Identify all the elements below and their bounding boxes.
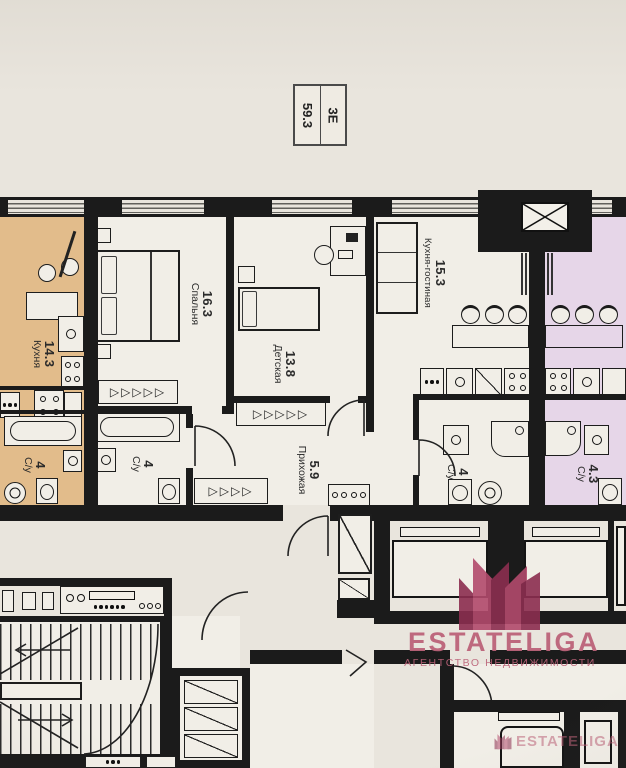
kitchen-left-cabinet (64, 392, 82, 418)
wall-kitchenleft-bedroom (84, 217, 98, 505)
bedroom-pillow-1 (101, 256, 117, 294)
vent-box-1 (184, 680, 238, 704)
unit-type-value: 3Е (326, 107, 341, 123)
door-arc-nursery (326, 398, 366, 438)
wall-bathmain-right-bottom (186, 468, 193, 505)
label-hallway: 5.9 Прихожая (290, 440, 326, 500)
elevator-x-icon (523, 204, 567, 230)
panel-box-2 (22, 592, 36, 610)
purple-stove (545, 368, 571, 396)
window-living (392, 200, 478, 214)
balcony-door-frame-right (547, 253, 553, 295)
label-bath-main: 4 С/у (128, 440, 156, 488)
living-washer (420, 368, 444, 396)
estateliga-brand-text: ESTATELIGA (408, 627, 592, 658)
wall-living-neighbor (529, 252, 545, 505)
wall-bedroom-bottom-right (222, 406, 234, 414)
bath-main-toilet (158, 478, 180, 504)
living-stove (504, 368, 530, 396)
elevator-car-2-door (532, 527, 600, 537)
elevator-wall-right (608, 521, 614, 611)
corridor-wall-left-piece (250, 650, 342, 664)
corner-brand-text: ESTATELIGA (516, 733, 619, 750)
small-shaft-box-1 (338, 514, 372, 574)
elevator-car-3-partial (616, 526, 626, 606)
corner-watermark: ESTATELIGA (492, 733, 619, 750)
wall-apartment-bottom-right (330, 505, 626, 521)
unit-badge: 59.3 3Е (293, 84, 347, 146)
living-sink (446, 368, 473, 396)
living-sofa-cushion-line-1 (378, 252, 416, 253)
panel-dots (89, 604, 129, 610)
floorplan-canvas: 59.3 3Е ▷▷▷▷▷ (0, 0, 626, 768)
living-bar-stool-3 (508, 305, 527, 324)
purple-bath-top-wall (545, 394, 626, 400)
bedroom-nightstand-1 (96, 228, 111, 243)
panel-dial-2 (77, 594, 85, 602)
bath-main-bathtub (94, 412, 180, 442)
lower-wall-horizontal (454, 700, 626, 712)
hallway-closet-top: ▷▷▷▷▷ (236, 402, 326, 426)
wall-bathsecond-left-bottom (413, 475, 419, 505)
elevator-shaft-symbol (521, 202, 569, 232)
wall-bathsecond-top (413, 394, 545, 400)
purple-bar-stool-3 (599, 305, 618, 324)
lower-wall-vertical (440, 664, 454, 768)
nursery-desk-chair (314, 245, 334, 265)
nursery-monitor (346, 233, 358, 242)
window-bedroom (122, 200, 204, 214)
label-bath-right: 4.3 С/у (573, 447, 601, 501)
purple-bar-counter (545, 325, 623, 348)
window-kitchen-left (8, 200, 84, 214)
unit-area-value: 59.3 (300, 102, 315, 127)
small-shaft-box-2 (338, 578, 370, 600)
wall-bedroom-bottom-left (84, 406, 192, 414)
wall-nursery-bottom (226, 396, 330, 403)
panel-dial-1 (66, 594, 74, 602)
vent-box-3 (184, 734, 238, 758)
purple-toilet (598, 478, 622, 505)
unit-badge-type-cell: 3Е (321, 86, 345, 144)
label-bedroom: 16.3 Спальня (181, 269, 221, 339)
bedroom-blanket-line (150, 252, 152, 340)
bottom-panel-sliver-2 (146, 756, 176, 768)
hallway-cabinet (328, 484, 370, 506)
balcony-door-frame-left (521, 253, 527, 295)
small-shaft-wall (337, 600, 377, 618)
panel-box-1 (2, 590, 14, 612)
window-neighbor-right (592, 200, 612, 214)
panel-main (60, 586, 164, 614)
wall-bedroom-nursery (226, 217, 234, 406)
panels-wall-top (0, 578, 172, 586)
living-bar-counter (452, 325, 529, 348)
neighbor-right-fill-top (592, 217, 626, 252)
wall-bathsecond-left-top (413, 394, 419, 440)
living-bar-stool-2 (485, 305, 504, 324)
lower-room-transom (498, 712, 560, 721)
bedroom-closet: ▷▷▷▷▷ (98, 380, 178, 404)
door-arc-corridor-left (200, 590, 250, 642)
bath-left-top-wall (0, 410, 84, 414)
vent-box-2 (184, 707, 238, 731)
wall-bathmain-right-top (186, 414, 193, 428)
bottom-panel-sliver-1 (85, 756, 141, 768)
bath-second-shower (491, 421, 529, 457)
bedroom-nightstand-2 (96, 344, 111, 359)
kitchen-left-chair-1 (38, 264, 56, 282)
door-arc-entrance (286, 514, 330, 558)
estateliga-crown-logo (447, 556, 552, 630)
label-nursery: 13.8 Детская (264, 332, 304, 396)
corner-crown-icon (492, 733, 514, 750)
label-kitchen-living: 15.3 Кухня-гостиная (416, 228, 452, 318)
estateliga-tagline-text: АГЕНТСТВО НЕДВИЖИМОСТИ (404, 657, 596, 669)
bath-left-sink (63, 450, 82, 472)
panel-knob-2 (147, 603, 153, 609)
living-bar-stool-1 (461, 305, 480, 324)
elevator-car-1-door (400, 527, 480, 537)
label-kitchen-left: 14.3 Кухня (21, 325, 65, 383)
nursery-nightstand (238, 266, 255, 283)
door-arc-bath-second (417, 438, 457, 478)
purple-bar-stool-1 (551, 305, 570, 324)
door-arc-stair-entry (82, 622, 160, 756)
nursery-keyboard (338, 250, 353, 259)
nursery-pillow (242, 291, 257, 327)
elevator-wall-left (374, 521, 390, 611)
unit-badge-area-cell: 59.3 (295, 86, 321, 144)
living-cabinet (475, 368, 502, 396)
bath-second-washer (478, 481, 502, 505)
purple-bar-stool-2 (575, 305, 594, 324)
label-bath-left: 4 С/у (21, 441, 47, 489)
living-sofa (376, 222, 418, 314)
living-sofa-cushion-line-2 (378, 282, 416, 283)
panel-knob-3 (155, 603, 161, 609)
bath-main-sink (96, 448, 116, 472)
bedroom-pillow-2 (101, 297, 117, 335)
stair-wall-right (160, 616, 172, 768)
unit-entry-door-zigzag (344, 648, 374, 680)
panel-knob-1 (139, 603, 145, 609)
hallway-closet-bottom: ▷▷▷▷ (194, 478, 268, 504)
lower-wall-piece-2 (618, 712, 626, 768)
purple-sink-kitchen (573, 368, 600, 396)
kitchen-left-washer (0, 392, 20, 418)
window-nursery (272, 200, 352, 214)
purple-cabinet (602, 368, 626, 396)
door-arc-bath-main (193, 424, 237, 468)
panel-box-3 (42, 592, 54, 610)
panel-meter (89, 591, 135, 600)
wall-apartment-bottom-left (0, 505, 283, 521)
